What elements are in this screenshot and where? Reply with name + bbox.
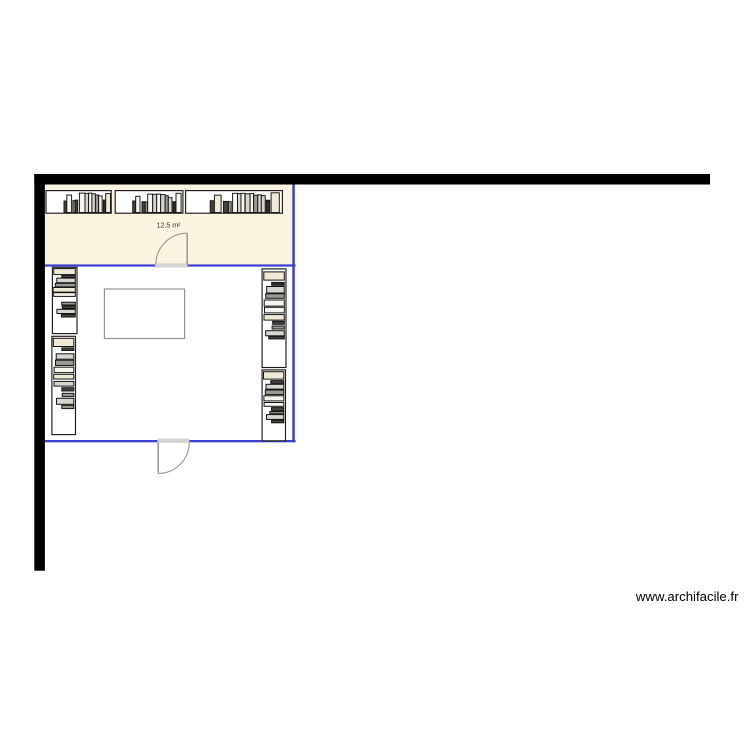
svg-text:www.archifacile.fr: www.archifacile.fr <box>635 589 739 604</box>
svg-text:12.5 m²: 12.5 m² <box>157 222 181 229</box>
